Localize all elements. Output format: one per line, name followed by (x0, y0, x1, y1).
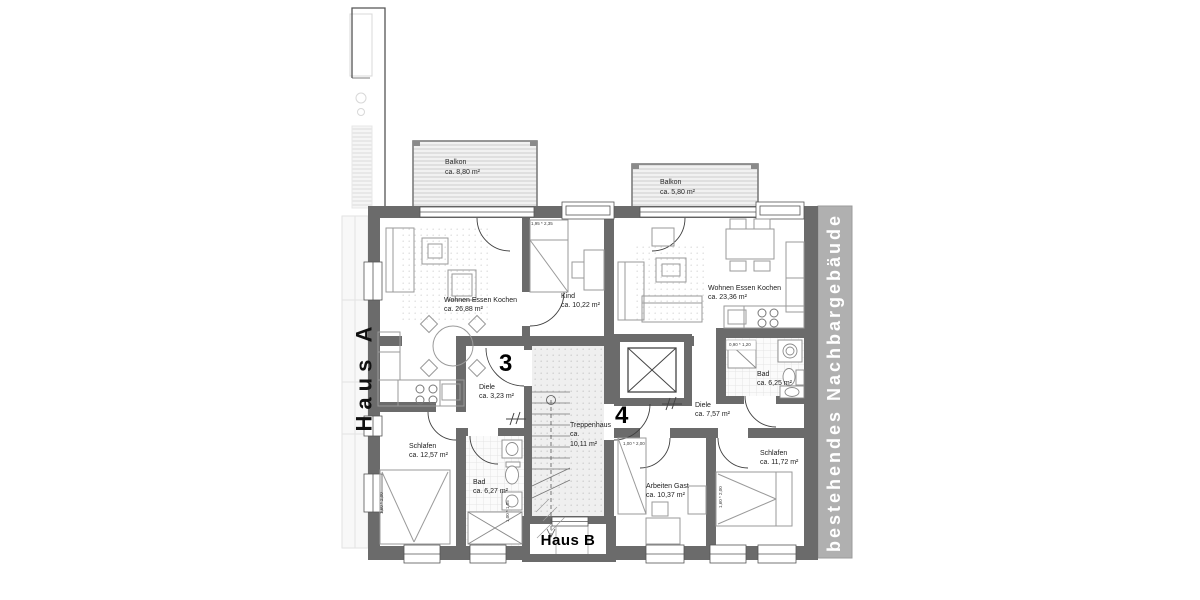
balkon-1-name: Balkon (445, 158, 480, 168)
room-label-treppenhaus: Treppenhaus ca. 10,11 m² (570, 421, 611, 449)
label-balkon-2: Balkon ca. 5,80 m² (660, 178, 695, 198)
room-label-kind: Kind ca. 10,22 m² (561, 292, 600, 311)
dim-bad4-window: 0,90 * 1,20 (729, 343, 751, 348)
label-balkon-1: Balkon ca. 8,80 m² (445, 158, 480, 178)
room-name: Bad (473, 478, 508, 487)
room-name: Arbeiten Gast (646, 482, 689, 491)
room-area: ca. 10,37 m² (646, 491, 689, 500)
room-label-bad-3: Bad ca. 6,27 m² (473, 478, 508, 497)
label-neighbor-building: bestehendes Nachbargebäude (818, 206, 852, 558)
apartment-number-4: 4 (615, 404, 628, 428)
room-name: Diele (479, 383, 514, 392)
room-area: ca. 6,25 m² (757, 379, 792, 388)
room-label-schlafen-4: Schlafen ca. 11,72 m² (760, 449, 798, 468)
room-area-prefix: ca. (570, 430, 611, 439)
room-area: ca. 3,23 m² (479, 392, 514, 401)
floorplan-drawing (0, 0, 1200, 600)
room-area: ca. 11,72 m² (760, 458, 798, 467)
room-area: ca. 26,88 m² (444, 305, 517, 314)
room-label-diele-3: Diele ca. 3,23 m² (479, 383, 514, 402)
room-label-bad-4: Bad ca. 6,25 m² (757, 370, 792, 389)
room-area: ca. 6,27 m² (473, 487, 508, 496)
apartment-number-3: 3 (499, 352, 512, 376)
dim-bed-3: 1,60 * 2,00 (380, 492, 385, 514)
room-name: Kind (561, 292, 600, 301)
floorplan-canvas: Balkon ca. 8,80 m² Balkon ca. 5,80 m² Wo… (0, 0, 1200, 600)
balkon-1-area: ca. 8,80 m² (445, 168, 480, 178)
haus-a-text: Haus A (351, 321, 377, 432)
dim-bad3-shower: 1,00 * 1,85 (506, 500, 511, 522)
dim-bed-4: 1,60 * 2,00 (719, 486, 724, 508)
room-area: ca. 7,57 m² (695, 410, 730, 419)
label-haus-a: Haus A (338, 298, 390, 454)
room-name: Schlafen (760, 449, 798, 458)
room-area: ca. 12,57 m² (409, 451, 448, 460)
room-name: Treppenhaus (570, 421, 611, 430)
label-haus-b: Haus B (530, 528, 606, 552)
balkon-2-name: Balkon (660, 178, 695, 188)
room-label-wohnen-4: Wohnen Essen Kochen ca. 23,36 m² (708, 284, 781, 303)
room-name: Wohnen Essen Kochen (444, 296, 517, 305)
balkon-2-area: ca. 5,80 m² (660, 188, 695, 198)
dim-arbeiten-door: 1,00 * 2,00 (623, 442, 645, 447)
neighbor-text: bestehendes Nachbargebäude (825, 212, 846, 551)
room-area: ca. 23,36 m² (708, 293, 781, 302)
room-area: ca. 10,22 m² (561, 301, 600, 310)
dim-kind-window: 1,95 * 2,35 (531, 222, 553, 227)
room-label-diele-4: Diele ca. 7,57 m² (695, 401, 730, 420)
room-area: 10,11 m² (570, 440, 611, 449)
room-name: Bad (757, 370, 792, 379)
room-name: Wohnen Essen Kochen (708, 284, 781, 293)
room-name: Diele (695, 401, 730, 410)
room-name: Schlafen (409, 442, 448, 451)
room-label-schlafen-3: Schlafen ca. 12,57 m² (409, 442, 448, 461)
room-label-arbeiten-gast: Arbeiten Gast ca. 10,37 m² (646, 482, 689, 501)
elevator (628, 348, 676, 392)
room-label-wohnen-3: Wohnen Essen Kochen ca. 26,88 m² (444, 296, 517, 315)
